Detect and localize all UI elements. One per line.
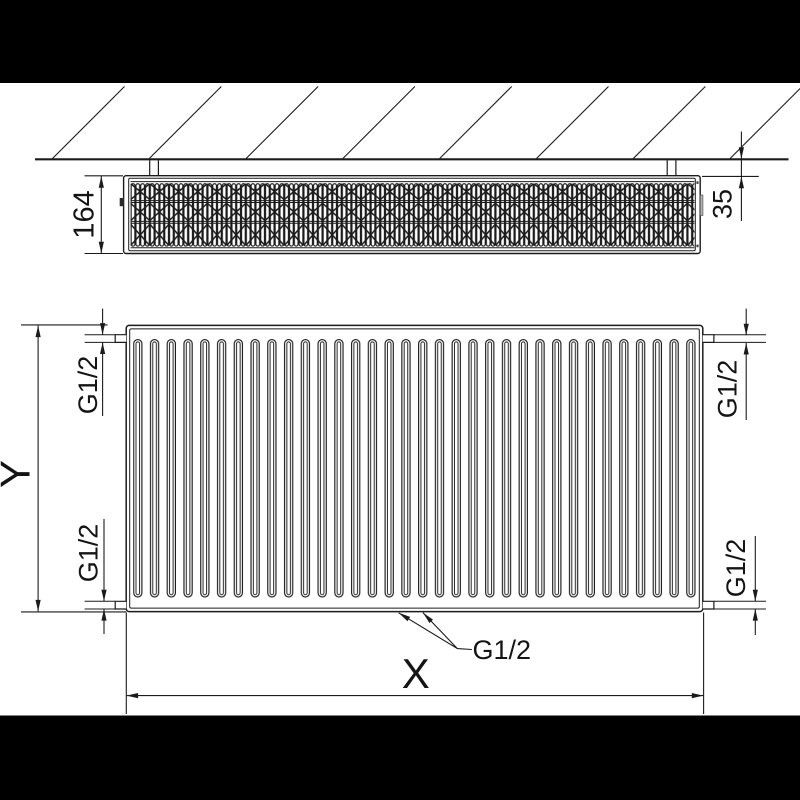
svg-text:164: 164: [69, 190, 101, 238]
svg-text:G1/2: G1/2: [473, 635, 532, 665]
svg-text:G1/2: G1/2: [73, 356, 103, 415]
svg-text:Y: Y: [0, 460, 39, 488]
svg-text:G1/2: G1/2: [721, 539, 751, 598]
svg-text:35: 35: [708, 189, 738, 219]
svg-text:X: X: [402, 650, 430, 697]
svg-text:G1/2: G1/2: [713, 360, 743, 419]
svg-text:G1/2: G1/2: [74, 524, 104, 583]
